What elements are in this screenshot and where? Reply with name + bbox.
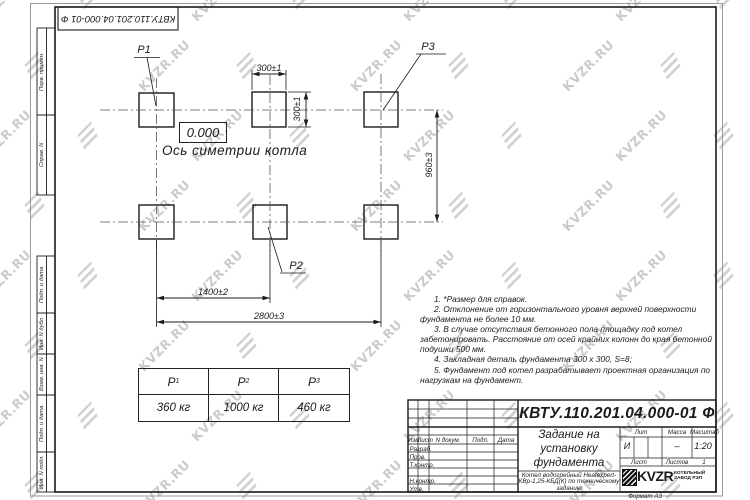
dim-col-full: 2800±3 <box>239 311 299 321</box>
margin-label-podp-data-1: Подп. и дата <box>37 256 47 313</box>
dim-row-spacing: 960±3 <box>424 135 434 195</box>
zero-level-box: 0.000 <box>179 122 227 143</box>
loads-value-p3: 460 кг <box>279 395 349 421</box>
margin-label-inv-dubl: Инв. N дубл. <box>37 313 47 354</box>
point-label-p2: P2 <box>282 260 310 272</box>
margin-label-vzam-inv: Взам. инв. N <box>37 354 47 395</box>
note-line: 2. Отклонение от горизонтального уровня … <box>420 304 718 324</box>
row-label-utv: Утв. <box>410 486 424 493</box>
point-label-p1: P1 <box>130 44 158 56</box>
sheets-label: Листов <box>660 459 694 466</box>
margin-label-inv-podl: Инв. N подл. <box>37 452 47 492</box>
row-label-prov: Пров. <box>410 454 426 461</box>
top-stamp: КВТУ.110.201.04.000-01 Ф <box>58 7 178 30</box>
loads-value-p1: 360 кг <box>139 395 209 421</box>
technical-notes: 1. *Размер для справок. 2. Отклонение от… <box>420 294 718 385</box>
zero-level-value: 0.000 <box>187 125 220 140</box>
row-label-tkontr: Т.контр. <box>410 462 435 469</box>
scale-value: 1:20 <box>690 441 716 451</box>
loads-header-p2: P2 <box>209 369 279 395</box>
sheets-value: 1 <box>694 459 714 466</box>
document-number: КВТУ.110.201.04.000-01 Ф <box>520 403 714 426</box>
row-label-nkontr: Н.контр. <box>410 478 436 485</box>
centerlines <box>100 74 443 257</box>
point-label-p3: P3 <box>414 41 442 53</box>
boiler-axis-label: Ось симетрии котла <box>162 143 307 158</box>
row-label-razrab: Разраб. <box>410 446 432 453</box>
format-label: Формат А3 <box>610 493 680 500</box>
kvzr-logo-caption: КОТЕЛЬНЫЙ ЗАВОД РЭП <box>674 471 716 482</box>
lit-value: И <box>620 441 634 451</box>
scale-label: Масштаб <box>690 429 716 436</box>
kvzr-logo-text: KVZR <box>637 468 673 484</box>
note-line: 1. *Размер для справок. <box>420 294 718 304</box>
lit-label: Лит <box>620 429 662 436</box>
rev-header-podp: Подп. <box>467 437 494 444</box>
mass-label: Масса <box>662 429 692 436</box>
dim-pad-width: 300±1 <box>239 63 299 73</box>
loads-value-p2: 1000 кг <box>209 395 279 421</box>
note-line: 5. Фундамент под котел разрабатывает про… <box>420 365 718 385</box>
foundation-pads <box>139 92 398 239</box>
sheet-label: Лист <box>620 459 658 466</box>
pad-top-middle <box>252 92 286 127</box>
drawing-sheet: KVZR.RUKVZR.RUKVZR.RUKVZR.RUKVZR.RUKVZR.… <box>0 0 750 500</box>
note-line: 4. Закладная деталь фундамента 300 x 300… <box>420 354 718 364</box>
kvzr-logo-icon <box>622 469 637 486</box>
margin-label-perv-primen: Перв. примен. <box>37 28 47 115</box>
loads-header-p1: P1 <box>139 369 209 395</box>
drawing-title: Задание на установку фундамента <box>519 429 619 470</box>
leader-lines <box>134 54 446 273</box>
mass-value: – <box>662 441 692 451</box>
rev-header-docum: N докум. <box>429 437 467 444</box>
margin-label-sprav-n: Справ. N <box>37 115 47 195</box>
drawing-subtitle: Котел водогрейный Heatexpert-КВр-1,25-КБ… <box>517 473 621 493</box>
note-line: 3. В случае отсутствия бетонного пола пл… <box>420 324 718 354</box>
margin-label-podp-data-2: Подп. и дата <box>37 395 47 452</box>
loads-header-p3: P3 <box>279 369 349 395</box>
loads-table: P1 P2 P3 360 кг 1000 кг 460 кг <box>138 368 350 422</box>
dim-pad-height: 300±1 <box>292 79 302 139</box>
rev-header-data: Дата <box>494 437 518 444</box>
top-stamp-text: КВТУ.110.201.04.000-01 Ф <box>61 13 175 24</box>
dim-col-half: 1400±2 <box>183 287 243 297</box>
